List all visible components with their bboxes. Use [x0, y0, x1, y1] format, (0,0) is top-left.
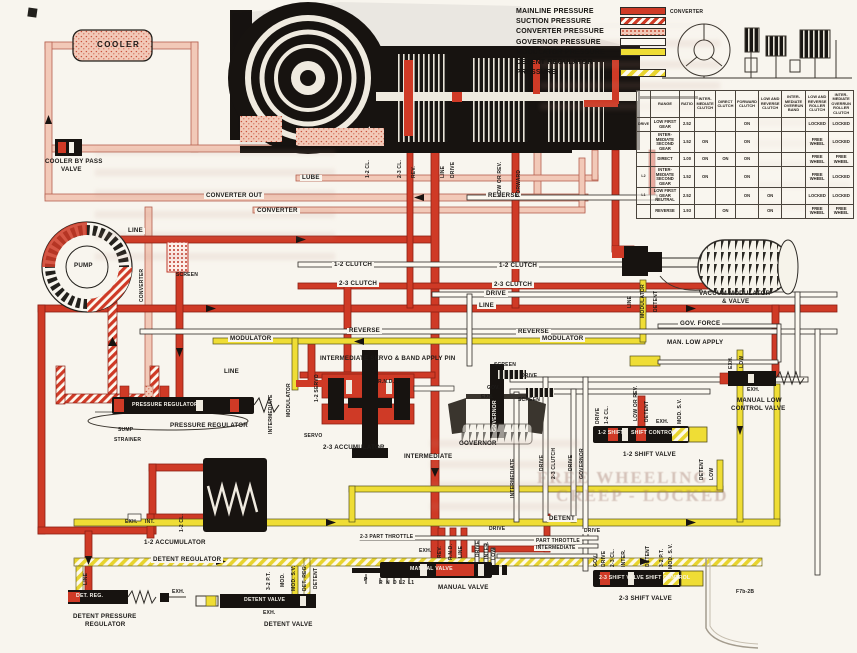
pipe-label: 1-2 CLUTCH — [332, 262, 374, 268]
clutch-table-cell: DRIVE — [637, 118, 651, 132]
pipe-label: LINE — [126, 228, 145, 234]
pipe-label: INTERMEDIATE — [402, 454, 454, 460]
clutch-table-cell: ON — [716, 204, 736, 218]
pipe-label: MODULATOR — [228, 336, 273, 342]
pipe-label: SCREEN — [494, 363, 516, 368]
pipe-label: 2-3 CLUTCH — [492, 282, 534, 288]
pipe-label: EXH. — [729, 357, 734, 369]
pipe-label: DRIVE — [582, 529, 602, 534]
pipe-label: INTERMEDIATE SERVO & BAND APPLY PIN — [320, 356, 455, 362]
pipe-label: P — [364, 578, 368, 583]
clutch-table-cell: LOCKED — [829, 132, 854, 153]
pipe-label: LUBE — [300, 175, 322, 181]
clutch-table-cell: ON — [735, 167, 759, 188]
pipe-label: LINE — [441, 166, 446, 178]
pipe-label: DETENT VALVE — [264, 622, 313, 628]
pipe-label: DRIVE — [540, 455, 545, 471]
pipe-label: R — [379, 581, 383, 586]
pipe-label: CONVERTER — [140, 269, 145, 302]
pipe-label: SUMP — [118, 428, 133, 433]
pipe-label: GOV. — [594, 554, 599, 567]
pipe-label: 3-2 P.T. — [660, 549, 665, 567]
pipe-label: INTERMEDIATE — [534, 546, 578, 551]
bleedthrough-line: CREEP - LOCKED — [556, 486, 729, 506]
clutch-table-row: DRIVELOW FIRST GEAR2.52ONLOCKEDLOCKED — [637, 118, 854, 132]
pipe-label: 1-2 ACCUMULATOR — [144, 540, 206, 546]
clutch-table-cell: 2.52 — [679, 118, 694, 132]
clutch-table-cell: LOCKED — [805, 118, 828, 132]
legend-swatch-hatch-red — [620, 17, 666, 25]
clutch-table-cell: L1 — [637, 188, 651, 205]
clutch-table-row: L2INTER-MEDIATE SECOND GEAR1.52ONONFREE … — [637, 167, 854, 188]
clutch-table-row: INTER-MEDIATE SECOND GEAR1.52ONONFREE WH… — [637, 132, 854, 153]
pipe-label: 2-3 ACCUMULATOR — [323, 445, 385, 451]
pipe-label: LOW OR REV. — [498, 162, 503, 197]
pipe-label: REVERSE — [347, 328, 382, 334]
clutch-table-cell: L2 — [637, 167, 651, 188]
bleedthrough-texture — [95, 150, 335, 260]
clutch-table-cell: REVERSE — [650, 204, 679, 218]
clutch-table-cell — [735, 204, 759, 218]
pipe-label: MODULATOR — [641, 284, 646, 318]
pipe-label: VACUUM MODULATOR — [699, 291, 770, 297]
pipe-label: 2-3 SHIFT VALVE SHIFT CONTROL — [599, 576, 690, 581]
clutch-table-row: DIRECT1.00ONONONFREE WHEELFREE WHEEL — [637, 153, 854, 167]
legend-swatch-stipple-pink — [620, 28, 666, 36]
pipe-label: CONVERTER — [255, 208, 300, 214]
pipe-label: PUMP — [74, 263, 93, 269]
clutch-table-row: REVERSE1.93ONONFREE WHEELFREE WHEEL — [637, 204, 854, 218]
clutch-table-header: RANGERATIOINTER-MEDIATE CLUTCHDIRECT CLU… — [637, 91, 854, 118]
legend-item: MODULATOR PRESSURE — [516, 47, 666, 57]
clutch-table-cell: LOCKED — [805, 188, 828, 205]
pipe-label: 2-3 SHIFT VALVE — [619, 596, 672, 602]
clutch-table-col-header: RANGE — [650, 91, 679, 118]
pipe-label: LINE — [477, 303, 496, 309]
pipe-label: EXH. — [747, 388, 759, 393]
pipe-label: CONVERTER — [670, 10, 703, 15]
clutch-table-cell: INTER-MEDIATE SECOND GEAR — [650, 167, 679, 188]
pipe-label: LINE — [628, 296, 633, 308]
pipe-label: SCREEN — [518, 398, 540, 403]
clutch-table-cell: ON — [735, 118, 759, 132]
pipe-label: GOV. — [487, 386, 500, 391]
clutch-table-cell — [782, 132, 806, 153]
pipe-label: REV. — [438, 546, 443, 558]
clutch-table-cell: ON — [735, 132, 759, 153]
pipe-label: R.N.D. — [378, 380, 394, 385]
pressure-legend: MAINLINE PRESSURESUCTION PRESSURECONVERT… — [516, 6, 666, 78]
clutch-table-col-header: FORWARD CLUTCH — [735, 91, 759, 118]
pipe-label: 1-2 CL. — [605, 406, 610, 424]
clutch-table-cell — [637, 204, 651, 218]
pipe-label: MANUAL VALVE — [438, 585, 489, 591]
pipe-label: PART THROTTLE — [534, 539, 582, 544]
pipe-label: VALVE — [61, 167, 82, 173]
clutch-table-cell: FREE WHEEL — [829, 153, 854, 167]
pipe-label: COOLER — [97, 41, 140, 49]
legend-item: PRESSURE — [516, 68, 666, 78]
clutch-table-cell: ON — [694, 153, 715, 167]
pipe-label: DRIVE — [487, 527, 507, 532]
pressure-regulator-valve — [112, 386, 279, 414]
page-edge — [706, 558, 758, 648]
cooler-bypass-valve — [55, 139, 82, 156]
pipe-label: 2-3 CL. — [398, 160, 403, 178]
clutch-table-col-header: INTER-MEDIATE OVERRUN BAND — [782, 91, 806, 118]
clutch-table-cell — [782, 167, 806, 188]
pipe-label: GOV. FORCE — [678, 321, 722, 327]
pipe-label: MAN. LOW APPLY — [665, 340, 725, 346]
pipe-label: D — [393, 581, 397, 586]
pipe-label: SERVO — [304, 434, 322, 439]
clutch-table-cell: 2.52 — [679, 188, 694, 205]
pipe-label: DETENT — [314, 568, 319, 589]
pipe-label: DET. REG. — [303, 565, 308, 591]
clutch-table-cell: FREE WHEEL — [829, 204, 854, 218]
clutch-table-col-header: RATIO — [679, 91, 694, 118]
pipe-label: DRIVE — [484, 291, 508, 297]
legend-item: MAINLINE PRESSURE — [516, 6, 666, 16]
clutch-table-cell — [694, 118, 715, 132]
clutch-table-cell — [716, 188, 736, 205]
legend-item: SUCTION PRESSURE — [516, 16, 666, 26]
clutch-application-table: RANGERATIOINTER-MEDIATE CLUTCHDIRECT CLU… — [636, 90, 854, 219]
pipe-label: INT. — [145, 520, 155, 525]
pipe-label: STRAINER — [114, 438, 141, 443]
clutch-table-cell: 1.52 — [679, 167, 694, 188]
pipe-label: 2-3 PART THROTTLE — [358, 535, 415, 540]
clutch-table-cell: 1.93 — [679, 204, 694, 218]
legend-item: CONVERTER PRESSURE — [516, 27, 666, 37]
clutch-table-cell: ON — [735, 188, 759, 205]
pipe-label: INTER. — [622, 549, 627, 567]
clutch-table-cell — [782, 204, 806, 218]
pipe-label: MODULATOR — [287, 383, 292, 417]
clutch-table-cell: ON — [735, 153, 759, 167]
pipe-label: INTERMEDIATE — [269, 394, 274, 434]
pipe-label: LOW OR REV. — [634, 386, 639, 421]
page-edge-inner — [710, 558, 758, 644]
pipe-label: MODULATOR — [540, 336, 585, 342]
pipe-label: LOW — [710, 468, 715, 480]
pipe-label: LINE — [222, 369, 241, 375]
legend-item: GOVERNOR PRESSURE — [516, 37, 666, 47]
legend-swatch-solid-yellow — [620, 48, 666, 56]
pipe-label: MOD. S.V. — [678, 399, 683, 424]
pipe-label: REV. — [412, 166, 417, 178]
pipe-label: LOW — [492, 548, 497, 560]
pipe-label: L1 — [408, 581, 414, 586]
pipe-label: EXH. — [656, 420, 668, 425]
clutch-table-cell: LOW FIRST GEAR — [650, 118, 679, 132]
pipe-label: FORWARD — [517, 170, 522, 197]
clutch-table-cell: FREE WHEEL — [805, 204, 828, 218]
clutch-table-cell — [694, 204, 715, 218]
pipe-label: DRIVE — [602, 551, 607, 567]
clutch-table-body: DRIVELOW FIRST GEAR2.52ONLOCKEDLOCKEDINT… — [637, 118, 854, 219]
governor-assembly — [448, 364, 554, 444]
pipe-label: EXH. — [419, 549, 431, 554]
legend-swatch-white — [620, 38, 666, 46]
clutch-table-cell: ON — [759, 188, 782, 205]
clutch-table-cell: 1.00 — [679, 153, 694, 167]
clutch-table-cell — [637, 153, 651, 167]
pipe-label: 1-2 SERVO — [315, 374, 320, 402]
clutch-table-cell: LOCKED — [829, 118, 854, 132]
pipe-label: & VALVE — [722, 299, 749, 305]
clutch-table-cell: DIRECT — [650, 153, 679, 167]
clutch-table-cell — [716, 118, 736, 132]
clutch-table-row: L1LOW FIRST GEAR NEUTRAL2.52ONONLOCKEDLO… — [637, 188, 854, 205]
pipe-label: 1-2 CLUTCH — [497, 263, 539, 269]
legend-label: DETENT REGULATOR — [516, 59, 593, 66]
pipe-label: MOD. — [281, 573, 286, 587]
pipe-label: DRIVE — [521, 374, 537, 379]
pipe-label: DETENT — [645, 401, 650, 422]
clutch-table-cell: ON — [716, 153, 736, 167]
pipe-label: LINE — [459, 546, 464, 558]
pipe-label: GOVERNOR — [493, 400, 498, 432]
clutch-table-col-header: LOW AND REVERSE CLUTCH — [759, 91, 782, 118]
pipe-label: DRIVE — [596, 408, 601, 424]
clutch-table-cell: LOW FIRST GEAR NEUTRAL — [650, 188, 679, 205]
pipe-label: 2-3 CL. — [611, 549, 616, 567]
pipe-label: 2-3 CLUTCH — [337, 281, 379, 287]
legend-swatch-solid-red — [620, 7, 666, 15]
clutch-table-cell: ON — [694, 132, 715, 153]
pipe-label: MANUAL LOW — [737, 398, 782, 404]
clutch-table-cell — [637, 132, 651, 153]
pipe-label: N — [386, 581, 390, 586]
pipe-label: INTERMEDIATE — [511, 458, 516, 498]
pipe-label: DETENT PRESSURE — [73, 614, 137, 620]
clutch-table-cell: LOCKED — [829, 167, 854, 188]
clutch-table-cell: LOCKED — [829, 188, 854, 205]
clutch-table-cell: FREE WHEEL — [805, 167, 828, 188]
pipe-label: L2 — [399, 581, 405, 586]
pipe-label: CONVERTER OUT — [204, 193, 264, 199]
pipe-label: MANUAL VALVE — [410, 567, 453, 572]
pipe-label: LINE — [84, 573, 89, 585]
legend-label: PRESSURE — [516, 69, 556, 76]
clutch-table-cell: INTER-MEDIATE SECOND GEAR — [650, 132, 679, 153]
clutch-table-cell — [782, 153, 806, 167]
clutch-table-cell — [782, 118, 806, 132]
pipe-label: 1-2 SHIFT — [598, 431, 624, 436]
pipe-label: 1-2 SHIFT VALVE — [623, 452, 676, 458]
pipe-label: EXH. — [172, 590, 184, 595]
pipe-label: DETENT — [547, 516, 577, 522]
pipe-label: PRESSURE REGULATOR — [132, 403, 198, 408]
clutch-table-cell: ON — [759, 204, 782, 218]
pipe-label: EXH. — [125, 520, 137, 525]
pipe-label: 2-3 CLUTCH — [552, 448, 557, 479]
hydraulic-circuit-diagram-page: FREE WHEELINGCREEP - LOCKED MAINLINE PRE… — [0, 0, 857, 653]
pipe-label: GOVERNOR — [580, 448, 585, 479]
pipe-label: 3-2 P.T. — [267, 572, 272, 590]
pipe-label: DETENT REGULATOR — [151, 557, 223, 563]
clutch-table-cell — [716, 132, 736, 153]
clutch-table-cell — [759, 167, 782, 188]
clutch-table-cell: 1.52 — [679, 132, 694, 153]
pipe-label: EXH. — [263, 611, 275, 616]
pipe-label: 1-2 CL. — [180, 514, 185, 532]
pipe-label: R.N.D. — [449, 544, 454, 560]
clutch-table-col-header: INTER-MEDIATE OVERRUN ROLLER CLUTCH — [829, 91, 854, 118]
clutch-table-cell — [782, 188, 806, 205]
pipe-label: SCREEN — [176, 273, 198, 278]
pipe-label: PRESSURE REGULATOR — [170, 423, 248, 429]
clutch-table-cell — [759, 132, 782, 153]
pipe-label: DETENT — [654, 291, 659, 312]
legend-label: MAINLINE PRESSURE — [516, 8, 594, 15]
clutch-table-col-header: INTER-MEDIATE CLUTCH — [694, 91, 715, 118]
pipe-label: DETENT VALVE — [244, 598, 285, 603]
pipe-label: 1-2 CL. — [366, 160, 371, 178]
pipe-label: INTER. — [485, 541, 490, 559]
suction-pressure-pipes — [56, 298, 159, 404]
clutch-table-cell: ON — [694, 167, 715, 188]
pipe-label: MOD. S.V. — [292, 566, 297, 591]
pipe-label: DETENT — [700, 459, 705, 480]
pipe-label: COOLER BY PASS — [45, 159, 103, 165]
clutch-table-col-header: LOW AND REVERSE ROLLER CLUTCH — [805, 91, 828, 118]
pipe-label: DRIVE — [451, 162, 456, 178]
pipe-label: F7b-2B — [736, 590, 754, 595]
pipe-label: DRIVE — [569, 455, 574, 471]
clutch-table-cell: FREE WHEEL — [805, 132, 828, 153]
pipe-label: DETENT — [646, 546, 651, 567]
pipe-label: DET. REG. — [76, 594, 103, 599]
clutch-table-cell: FREE WHEEL — [805, 153, 828, 167]
bleedthrough-line: FREE WHEELING — [537, 468, 709, 488]
pipe-label: REGULATOR — [85, 622, 125, 628]
clutch-table-cell — [759, 153, 782, 167]
pipe-label: DRIVE — [476, 541, 481, 557]
clutch-table-cell — [694, 188, 715, 205]
legend-item: DETENT REGULATOR — [516, 57, 666, 67]
pipe-label: GOVERNOR — [459, 441, 497, 447]
legend-label: MODULATOR PRESSURE — [516, 49, 605, 56]
clutch-table-cell — [716, 167, 736, 188]
legend-label: SUCTION PRESSURE — [516, 18, 591, 25]
legend-label: GOVERNOR PRESSURE — [516, 39, 601, 46]
pipe-label: SHIFT CONTROL — [631, 431, 676, 436]
legend-label: CONVERTER PRESSURE — [516, 28, 604, 35]
pipe-label: CONTROL VALVE — [731, 406, 786, 412]
legend-swatch-hatch-yellow — [620, 69, 666, 77]
clutch-table-col-header — [637, 91, 651, 118]
pipe-label: LOW — [740, 356, 745, 368]
clutch-table-cell — [759, 118, 782, 132]
pipe-label: MOD. S.V. — [669, 544, 674, 569]
clutch-table-col-header: DIRECT CLUTCH — [716, 91, 736, 118]
